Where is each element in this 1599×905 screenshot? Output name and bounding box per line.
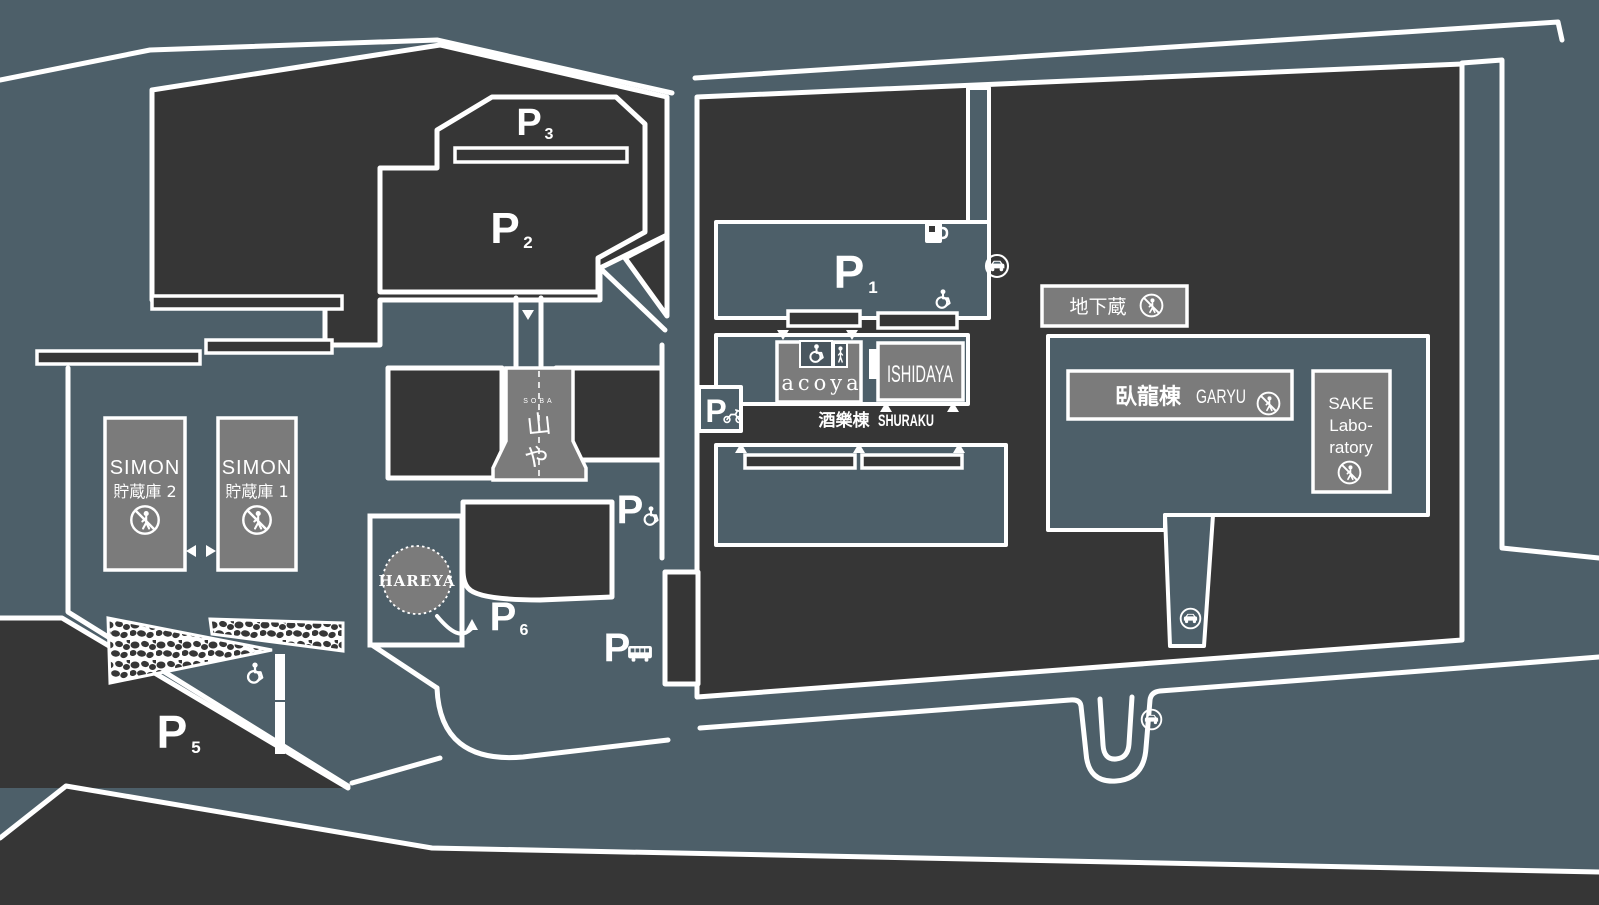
site-map: P 3 P 2 P 1 P 5 P 6 P P P SIMON 貯蔵庫 2 SI…	[0, 0, 1599, 905]
p1-east-corridor	[968, 88, 989, 222]
simon1-name: SIMON	[222, 457, 293, 479]
acoya-ishidaya-connector	[869, 349, 877, 379]
simon1-sub: 貯蔵庫 1	[225, 482, 288, 501]
sake-lab-line3: ratory	[1329, 438, 1373, 457]
garyu-en: GARYU	[1196, 387, 1246, 408]
p5-number: 5	[191, 738, 200, 757]
middle-divider-bar-1	[745, 455, 855, 468]
simon2-sub: 貯蔵庫 2	[113, 482, 176, 501]
soba-glyph-2: や	[522, 441, 551, 473]
p1-number: 1	[868, 278, 877, 297]
p6-label: P	[490, 595, 517, 639]
p-bus-label: P	[604, 626, 631, 670]
p-accessible-label: P	[617, 488, 644, 532]
wall-pillar-1	[275, 654, 285, 700]
underground-cellar-label: 地下蔵	[1069, 296, 1126, 318]
p-motorcycle-label: P	[705, 393, 726, 429]
parcel-center-divider	[665, 572, 698, 684]
p1-divider-bar-2	[878, 313, 957, 328]
p3-label: P	[516, 102, 541, 144]
p2-label: P	[490, 204, 519, 253]
soba-caption: SOBA	[523, 398, 554, 405]
hareya-name: HAREYA	[378, 572, 455, 590]
p6-number: 6	[520, 622, 529, 639]
middle-divider-bar-2	[862, 455, 962, 468]
sake-lab-line1: SAKE	[1328, 394, 1373, 413]
p3-number: 3	[545, 126, 554, 143]
parcel-center-left	[388, 368, 502, 478]
west-divider-bar-1	[152, 296, 342, 309]
ishidaya-name: ISHIDAYA	[887, 361, 953, 388]
simon2-name: SIMON	[110, 457, 181, 479]
shuraku-en: SHURAKU	[878, 411, 934, 430]
p3-divider-bar	[455, 148, 627, 162]
parcel-center-lower	[463, 502, 612, 600]
p1-label: P	[834, 246, 865, 298]
site-map-svg: P 3 P 2 P 1 P 5 P 6 P P P SIMON 貯蔵庫 2 SI…	[0, 0, 1599, 905]
shuraku-jp: 酒樂棟	[819, 410, 871, 431]
p2-number: 2	[523, 233, 532, 252]
garyu-jp: 臥龍棟	[1115, 384, 1182, 410]
wall-pillar-2	[275, 702, 285, 754]
sake-lab-line2: Labo-	[1329, 416, 1372, 435]
acoya-name: acoya	[781, 371, 862, 395]
soba-glyph-1: 山	[525, 409, 553, 440]
p5-label: P	[157, 706, 188, 758]
west-divider-bar-2	[206, 340, 332, 353]
west-divider-bar-3	[37, 351, 200, 364]
p1-divider-bar-1	[788, 311, 860, 326]
garyu-south-corridor	[1165, 515, 1213, 646]
